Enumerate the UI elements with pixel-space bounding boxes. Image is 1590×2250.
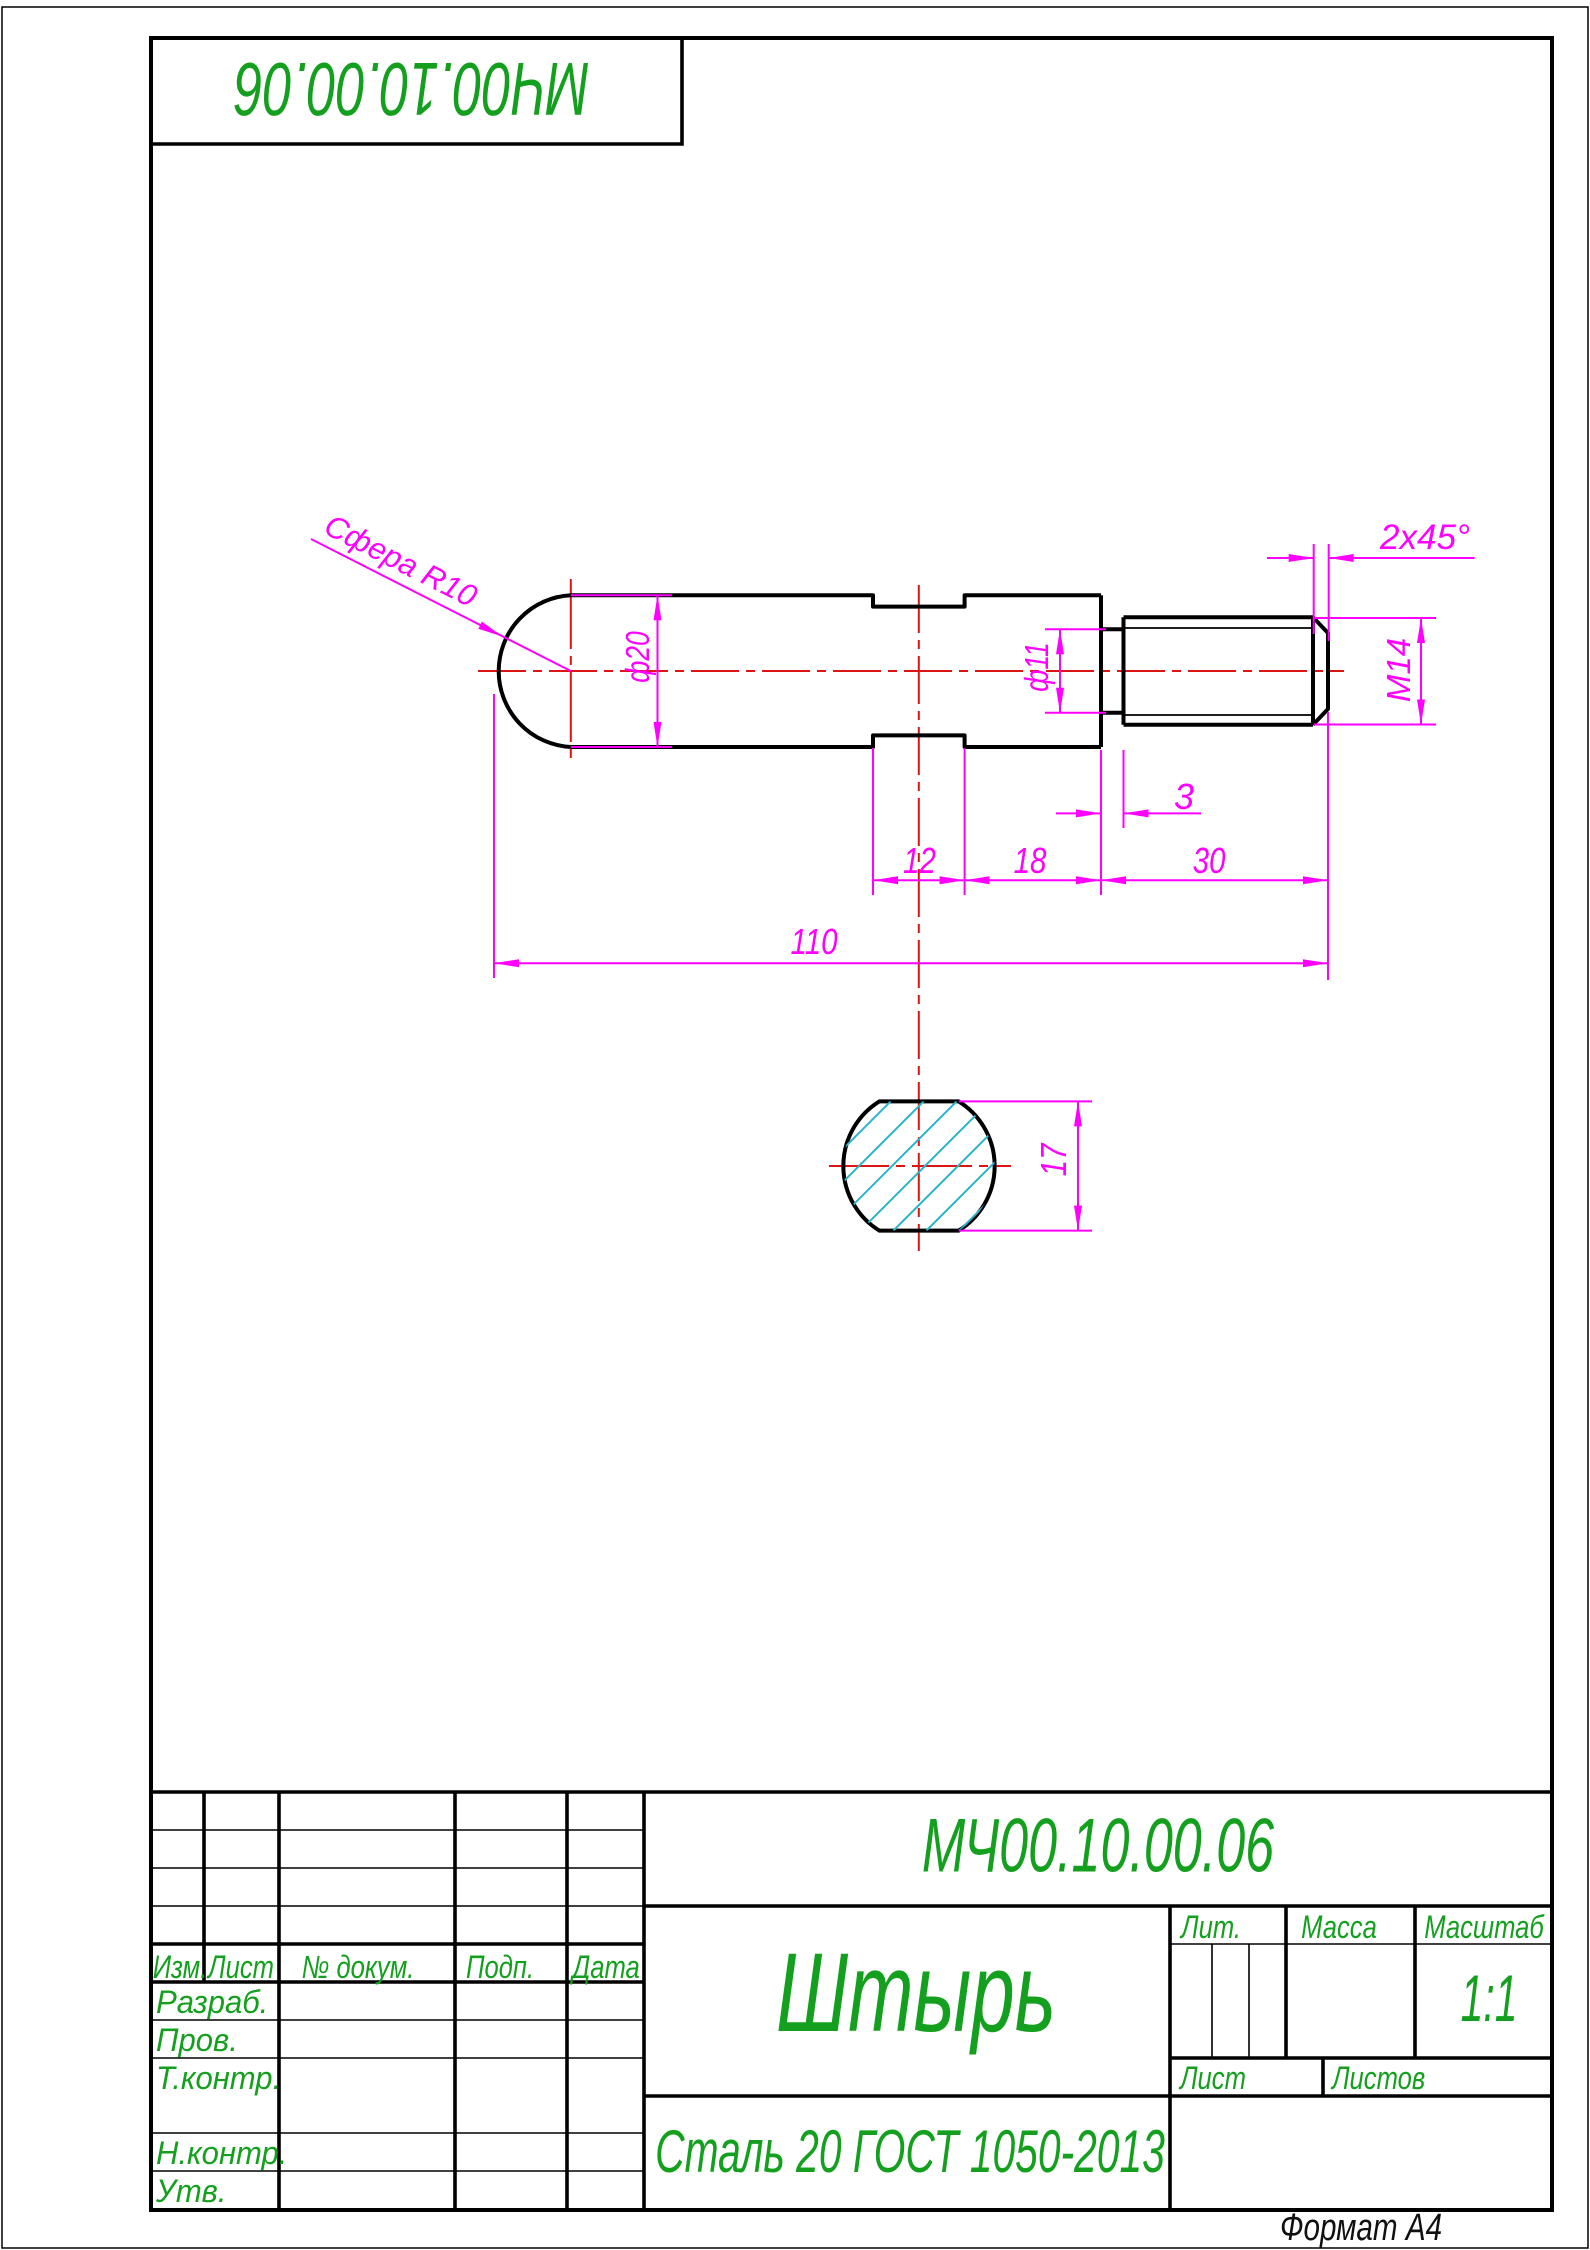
svg-text:Пров.: Пров. (156, 2022, 238, 2059)
svg-text:МЧ00.10.00.06: МЧ00.10.00.06 (234, 47, 589, 132)
svg-text:Утв.: Утв. (155, 2173, 226, 2210)
svg-text:МЧ00.10.00.06: МЧ00.10.00.06 (922, 1802, 1275, 1887)
svg-text:110: 110 (790, 921, 838, 961)
svg-text:Разраб.: Разраб. (156, 1984, 268, 2021)
svg-text:Штырь: Штырь (776, 1930, 1056, 2055)
svg-text:3: 3 (1174, 776, 1194, 817)
svg-text:17: 17 (1033, 1142, 1073, 1176)
svg-text:Н.контр.: Н.контр. (156, 2135, 287, 2172)
svg-text:ф20: ф20 (620, 631, 656, 683)
svg-text:Листов: Листов (1330, 2061, 1425, 2096)
svg-text:Изм.: Изм. (153, 1950, 208, 1985)
svg-text:Сталь 20 ГОСТ 1050-2013: Сталь 20 ГОСТ 1050-2013 (655, 2118, 1165, 2185)
svg-text:Дата: Дата (570, 1950, 640, 1985)
svg-text:Лист: Лист (206, 1950, 274, 1985)
svg-text:1:1: 1:1 (1461, 1961, 1518, 2036)
svg-text:Формат А4: Формат А4 (1280, 2207, 1442, 2249)
svg-text:Лит.: Лит. (1179, 1910, 1241, 1945)
svg-text:12: 12 (903, 840, 936, 880)
svg-text:№ докум.: № докум. (302, 1950, 415, 1985)
svg-text:M14: M14 (1380, 638, 1417, 702)
svg-text:Подп.: Подп. (466, 1950, 534, 1985)
svg-text:Т.контр.: Т.контр. (156, 2060, 281, 2097)
svg-text:18: 18 (1014, 840, 1047, 880)
svg-text:2x45°: 2x45° (1379, 518, 1470, 557)
svg-text:Масштаб: Масштаб (1424, 1910, 1545, 1945)
svg-text:Лист: Лист (1178, 2061, 1246, 2096)
svg-text:ф11: ф11 (1019, 642, 1055, 691)
svg-text:30: 30 (1193, 840, 1226, 880)
svg-text:Масса: Масса (1301, 1910, 1377, 1945)
